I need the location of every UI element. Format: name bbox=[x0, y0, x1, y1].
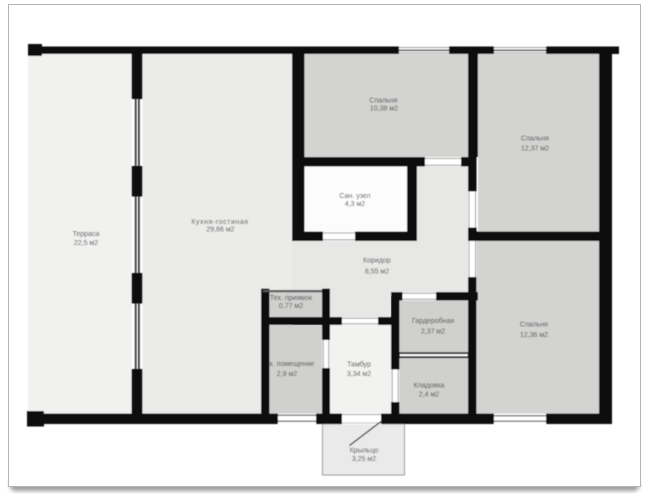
svg-text:2,37 м2: 2,37 м2 bbox=[421, 329, 445, 336]
svg-text:0,77 м2: 0,77 м2 bbox=[279, 303, 303, 310]
svg-text:Гардеробная: Гардеробная bbox=[412, 317, 455, 325]
svg-text:Спальня: Спальня bbox=[521, 136, 549, 143]
svg-text:12,37 м2: 12,37 м2 bbox=[521, 146, 549, 153]
svg-text:2,9 м2: 2,9 м2 bbox=[277, 371, 297, 378]
svg-text:3,34 м2: 3,34 м2 bbox=[347, 371, 371, 378]
svg-text:22,5 м2: 22,5 м2 bbox=[74, 240, 98, 247]
svg-text:Тех. помещение: Тех. помещение bbox=[262, 361, 315, 368]
svg-text:Кухня-гостиная: Кухня-гостиная bbox=[191, 219, 248, 226]
svg-text:Терраса: Терраса bbox=[73, 231, 100, 238]
svg-text:Тех. приямок: Тех. приямок bbox=[270, 295, 313, 302]
svg-text:29,66 м2: 29,66 м2 bbox=[206, 227, 234, 234]
svg-text:Спальня: Спальня bbox=[369, 97, 397, 104]
svg-text:Сан. узел: Сан. узел bbox=[339, 193, 370, 200]
svg-text:2,4 м2: 2,4 м2 bbox=[419, 392, 439, 399]
svg-text:Тамбур: Тамбур bbox=[347, 361, 371, 369]
svg-text:12,36 м2: 12,36 м2 bbox=[520, 332, 548, 339]
svg-text:Коридор: Коридор bbox=[363, 258, 391, 265]
svg-text:10,38 м2: 10,38 м2 bbox=[370, 106, 398, 113]
svg-text:Спальня: Спальня bbox=[520, 322, 548, 329]
svg-text:Крыльцо: Крыльцо bbox=[350, 448, 379, 455]
svg-text:Кладовка: Кладовка bbox=[414, 383, 445, 390]
svg-text:4,3 м2: 4,3 м2 bbox=[345, 201, 365, 208]
svg-text:8,55 м2: 8,55 м2 bbox=[365, 268, 389, 275]
svg-text:3,25 м2: 3,25 м2 bbox=[352, 456, 376, 463]
